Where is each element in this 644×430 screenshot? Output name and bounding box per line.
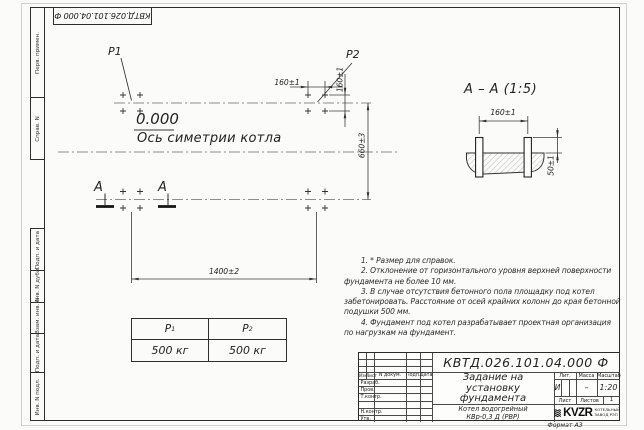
note-line: 2. Отклонение от горизонтального уровня … bbox=[344, 266, 612, 276]
company-logo: KVZR КОТЕЛЬНЫЙ ЗАВОД РЭП bbox=[554, 404, 620, 422]
titleblock-grid-line bbox=[359, 401, 432, 402]
section-view-title: А – А (1:5) bbox=[464, 82, 537, 97]
load-table-header-p2: P2 bbox=[209, 319, 286, 340]
note-line: подушки 500 мм. bbox=[344, 307, 612, 317]
product-name: Котел водогрейный КВр-0,3 Д (РВР) bbox=[432, 406, 554, 421]
sheets-label: Листов bbox=[576, 398, 603, 404]
note-line: забетонировать. Расстояние от осей крайн… bbox=[344, 297, 612, 307]
titleblock-grid-line bbox=[359, 366, 432, 367]
centerlines bbox=[58, 103, 400, 200]
titleblock-doc-number: КВТД.026.101.04.000 Ф bbox=[432, 354, 620, 372]
lit-value: И bbox=[554, 383, 561, 392]
col-sign: Подп. bbox=[406, 373, 420, 378]
load-table-value-p2: 500 кг bbox=[209, 340, 286, 361]
dim-660: 660±3 bbox=[358, 121, 367, 171]
doc-title-line: Задание на bbox=[432, 373, 554, 384]
notes-block: 1. * Размер для справок. 2. Отклонение о… bbox=[344, 256, 612, 338]
col-list: Лист bbox=[366, 373, 374, 378]
kvzr-zigzag-icon bbox=[554, 406, 561, 420]
boiler-symmetry-axis-label: Ось симетрии котла bbox=[137, 131, 281, 146]
col-doc: N докум. bbox=[374, 373, 406, 378]
format-note: Формат А3 bbox=[525, 422, 605, 429]
scale-label: Масштаб bbox=[597, 373, 620, 379]
sig-nkontr: Н.контр. bbox=[361, 409, 383, 415]
section-letter-a2: А bbox=[158, 180, 167, 195]
section-letter-a1: А bbox=[94, 180, 103, 195]
section-cut-marks bbox=[96, 194, 176, 207]
dim-160-horizontal: 160±1 bbox=[272, 78, 302, 87]
sig-razrab: Разраб. bbox=[361, 380, 380, 386]
scale-value: 1:20 bbox=[597, 383, 620, 392]
sig-tkontr: Т.контр. bbox=[361, 394, 382, 400]
titleblock-grid-line bbox=[359, 359, 432, 360]
elevation-mark: 0.000 bbox=[136, 110, 179, 128]
mass-value: – bbox=[576, 383, 597, 392]
section-dim-160: 160±1 bbox=[483, 108, 523, 117]
load-table-value-p1: 500 кг bbox=[132, 340, 209, 361]
sig-prov: Пров. bbox=[361, 387, 375, 393]
dimension-lines bbox=[132, 74, 369, 283]
title-block: Изм. Лист N докум. Подп. Дата Разраб. Пр… bbox=[358, 352, 620, 421]
titleblock-grid-line bbox=[561, 379, 562, 397]
col-izm: Изм. bbox=[359, 373, 366, 378]
section-dim-50: 50±1 bbox=[547, 146, 556, 186]
p1-sub: 1 bbox=[171, 325, 175, 333]
note-line: фундамента не более 10 мм. bbox=[344, 277, 612, 287]
drawing-sheet: { "frame": { "top_stamp": "КВТД.026.101.… bbox=[0, 0, 644, 430]
sig-utv: Утв. bbox=[361, 416, 371, 422]
titleblock-grid-line bbox=[406, 353, 407, 422]
load-point-p2-label: P2 bbox=[346, 48, 360, 61]
note-line: по нагрузкам на фундамент. bbox=[344, 328, 612, 338]
product-line: КВр-0,3 Д (РВР) bbox=[432, 414, 554, 422]
col-date: Дата bbox=[420, 373, 432, 378]
load-table-header-p1: P1 bbox=[132, 319, 209, 340]
note-line: 3. В случае отсутствия бетонного пола пл… bbox=[344, 287, 612, 297]
logo-caption: КОТЕЛЬНЫЙ ЗАВОД РЭП bbox=[594, 408, 620, 417]
dim-160-vertical: 160±1 bbox=[336, 55, 345, 105]
titleblock-grid-line bbox=[569, 379, 570, 397]
lit-label: Лит. bbox=[554, 373, 576, 379]
load-point-p1-label: P1 bbox=[108, 45, 122, 58]
dim-1400: 1400±2 bbox=[194, 267, 254, 276]
logo-caption-line: ЗАВОД РЭП bbox=[594, 413, 620, 418]
doc-title-line: фундамента bbox=[432, 394, 554, 405]
mass-label: Масса bbox=[576, 373, 597, 379]
sheets-value: 1 bbox=[603, 397, 620, 403]
sheet-label: Лист bbox=[554, 398, 576, 404]
p2-sub: 2 bbox=[249, 325, 253, 333]
load-table: P1 P2 500 кг 500 кг bbox=[131, 318, 287, 362]
doc-title: Задание на установку фундамента bbox=[432, 373, 554, 405]
note-line: 4. Фундамент под котел разрабатывает про… bbox=[344, 318, 612, 328]
note-line: 1. * Размер для справок. bbox=[344, 256, 612, 266]
titleblock-grid-line bbox=[420, 353, 421, 422]
logo-text: KVZR bbox=[563, 407, 592, 419]
